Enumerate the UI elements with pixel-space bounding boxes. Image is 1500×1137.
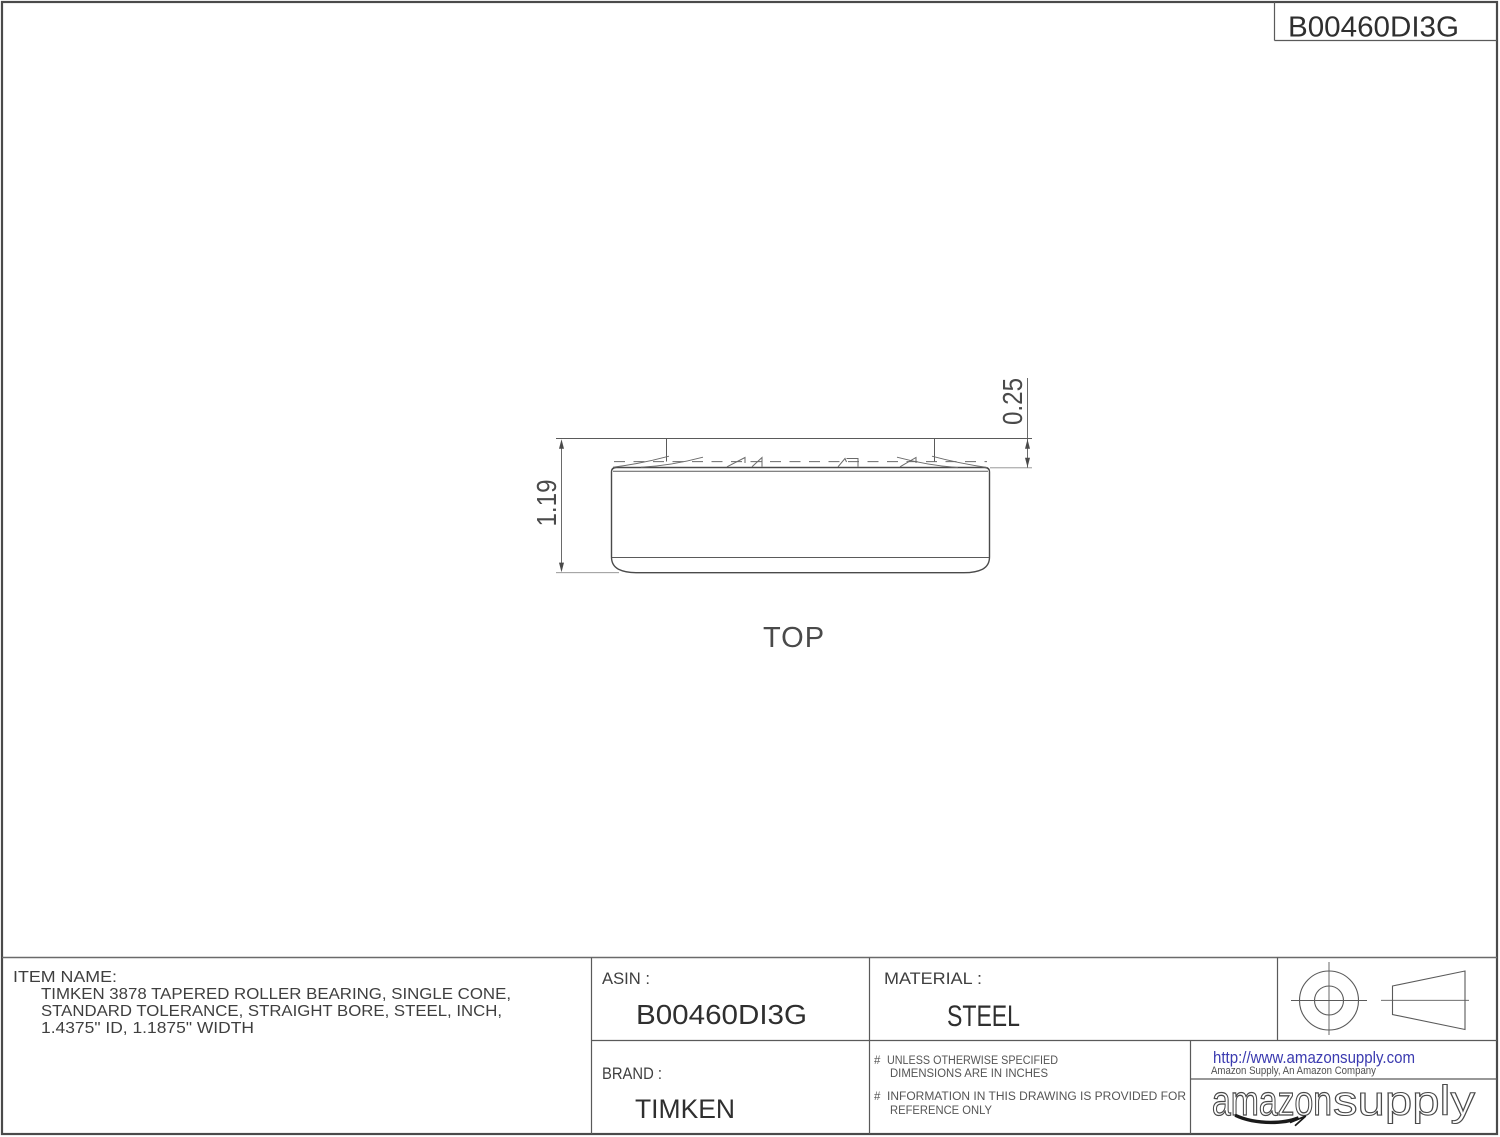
svg-text:ITEM NAME:: ITEM NAME: bbox=[13, 969, 117, 986]
svg-text:ASIN :: ASIN : bbox=[602, 969, 650, 988]
svg-text:1.4375" ID, 1.1875" WIDTH: 1.4375" ID, 1.1875" WIDTH bbox=[41, 1020, 254, 1037]
svg-text:TIMKEN: TIMKEN bbox=[635, 1094, 735, 1124]
svg-text:1.19: 1.19 bbox=[531, 480, 562, 527]
svg-text:B00460DI3G: B00460DI3G bbox=[636, 999, 807, 1030]
svg-text:UNLESS OTHERWISE SPECIFIED: UNLESS OTHERWISE SPECIFIED bbox=[887, 1055, 1058, 1067]
svg-text:MATERIAL :: MATERIAL : bbox=[884, 969, 982, 988]
svg-text:#: # bbox=[874, 1091, 881, 1103]
svg-text:TOP: TOP bbox=[763, 622, 825, 654]
svg-text:B00460DI3G: B00460DI3G bbox=[1288, 12, 1459, 44]
svg-text:TIMKEN 3878 TAPERED ROLLER BEA: TIMKEN 3878 TAPERED ROLLER BEARING, SING… bbox=[41, 986, 511, 1003]
svg-text:REFERENCE ONLY: REFERENCE ONLY bbox=[890, 1105, 992, 1117]
svg-text:0.25: 0.25 bbox=[997, 378, 1028, 425]
svg-text:INFORMATION IN THIS DRAWING IS: INFORMATION IN THIS DRAWING IS PROVIDED … bbox=[887, 1091, 1186, 1103]
svg-text:BRAND :: BRAND : bbox=[602, 1064, 662, 1083]
svg-text:amazon: amazon bbox=[1212, 1077, 1332, 1124]
svg-text:DIMENSIONS ARE IN INCHES: DIMENSIONS ARE IN INCHES bbox=[890, 1068, 1048, 1080]
svg-text:supply: supply bbox=[1333, 1077, 1475, 1124]
svg-text:Amazon Supply, An Amazon Compa: Amazon Supply, An Amazon Company bbox=[1211, 1065, 1376, 1077]
svg-text:STEEL: STEEL bbox=[947, 1000, 1020, 1033]
svg-text:#: # bbox=[874, 1055, 881, 1067]
svg-text:STANDARD TOLERANCE, STRAIGHT B: STANDARD TOLERANCE, STRAIGHT BORE, STEEL… bbox=[41, 1003, 502, 1020]
